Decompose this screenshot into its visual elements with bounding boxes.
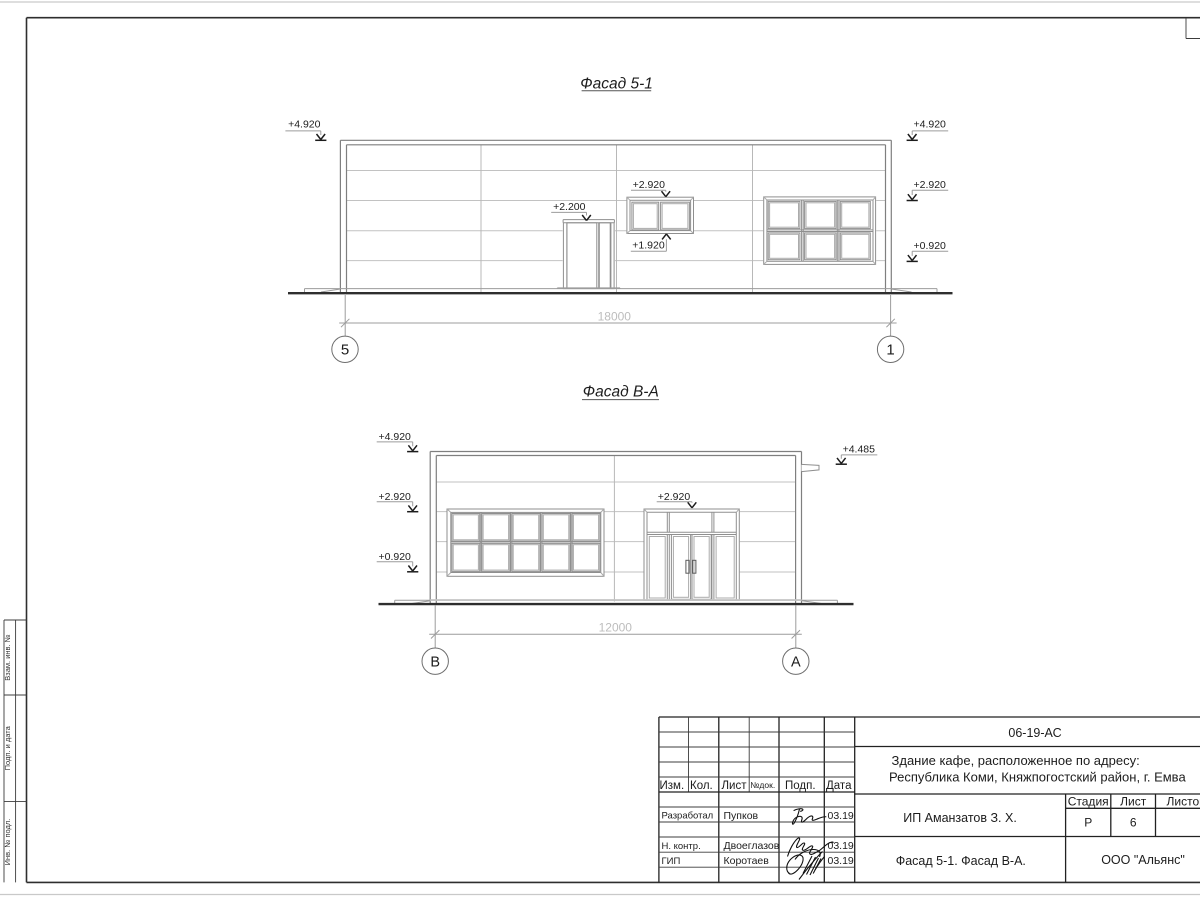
svg-text:Фасад 5-1. Фасад В-А.: Фасад 5-1. Фасад В-А. [896,854,1026,868]
svg-text:+4.920: +4.920 [288,119,321,131]
svg-text:Н. контр.: Н. контр. [662,841,701,852]
svg-text:03.19: 03.19 [828,855,854,867]
svg-text:ООО "Альянс": ООО "Альянс" [1101,853,1185,867]
svg-text:03.19: 03.19 [828,810,854,822]
svg-text:Пупков: Пупков [724,810,759,822]
svg-text:+2.920: +2.920 [658,491,691,503]
svg-text:Фасад В-А: Фасад В-А [583,383,659,400]
svg-text:Фасад 5-1: Фасад 5-1 [580,75,653,92]
svg-text:+0.920: +0.920 [378,551,411,563]
svg-text:А: А [791,654,801,670]
svg-text:Коротаев: Коротаев [724,855,770,867]
svg-text:Республика Коми, Княжпогостски: Республика Коми, Княжпогостский район, г… [889,769,1186,784]
svg-text:В: В [430,654,440,670]
svg-text:ГИП: ГИП [662,856,681,867]
svg-text:Инв. № подл.: Инв. № подл. [3,819,12,866]
svg-text:Кол.: Кол. [690,780,713,792]
svg-text:+1.920: +1.920 [632,240,665,252]
svg-text:№док.: №док. [750,780,775,790]
svg-text:Р: Р [1084,815,1092,829]
svg-text:Изм.: Изм. [660,780,685,792]
svg-text:5: 5 [341,342,349,359]
svg-text:12000: 12000 [599,621,633,635]
svg-text:+2.200: +2.200 [553,201,586,213]
svg-text:Разработал: Разработал [662,811,714,822]
svg-text:Подп. и дата: Подп. и дата [3,725,12,770]
svg-text:Стадия: Стадия [1068,795,1109,809]
svg-text:Дата: Дата [826,780,852,792]
svg-text:+4.920: +4.920 [378,431,411,443]
svg-text:Листов: Листов [1167,795,1200,809]
svg-text:+4.920: +4.920 [913,119,946,131]
svg-text:Подп.: Подп. [785,780,816,792]
svg-text:+0.920: +0.920 [913,240,946,252]
svg-text:Здание кафе, расположенное по: Здание кафе, расположенное по адресу: [892,753,1140,768]
svg-text:Взам. инв. №: Взам. инв. № [3,634,12,680]
svg-text:1: 1 [886,342,894,359]
svg-text:6: 6 [1130,815,1137,829]
svg-text:Лист: Лист [1120,795,1147,809]
svg-text:06-19-АС: 06-19-АС [1008,726,1061,740]
svg-text:Лист: Лист [722,780,748,792]
svg-text:Двоеглазов: Двоеглазов [724,840,780,852]
svg-text:+2.920: +2.920 [633,179,666,191]
svg-text:+2.920: +2.920 [378,491,411,503]
svg-text:18000: 18000 [598,309,632,323]
svg-text:+4.485: +4.485 [843,443,876,455]
svg-text:+2.920: +2.920 [913,179,946,191]
svg-text:ИП Аманзатов З. Х.: ИП Аманзатов З. Х. [903,811,1017,825]
